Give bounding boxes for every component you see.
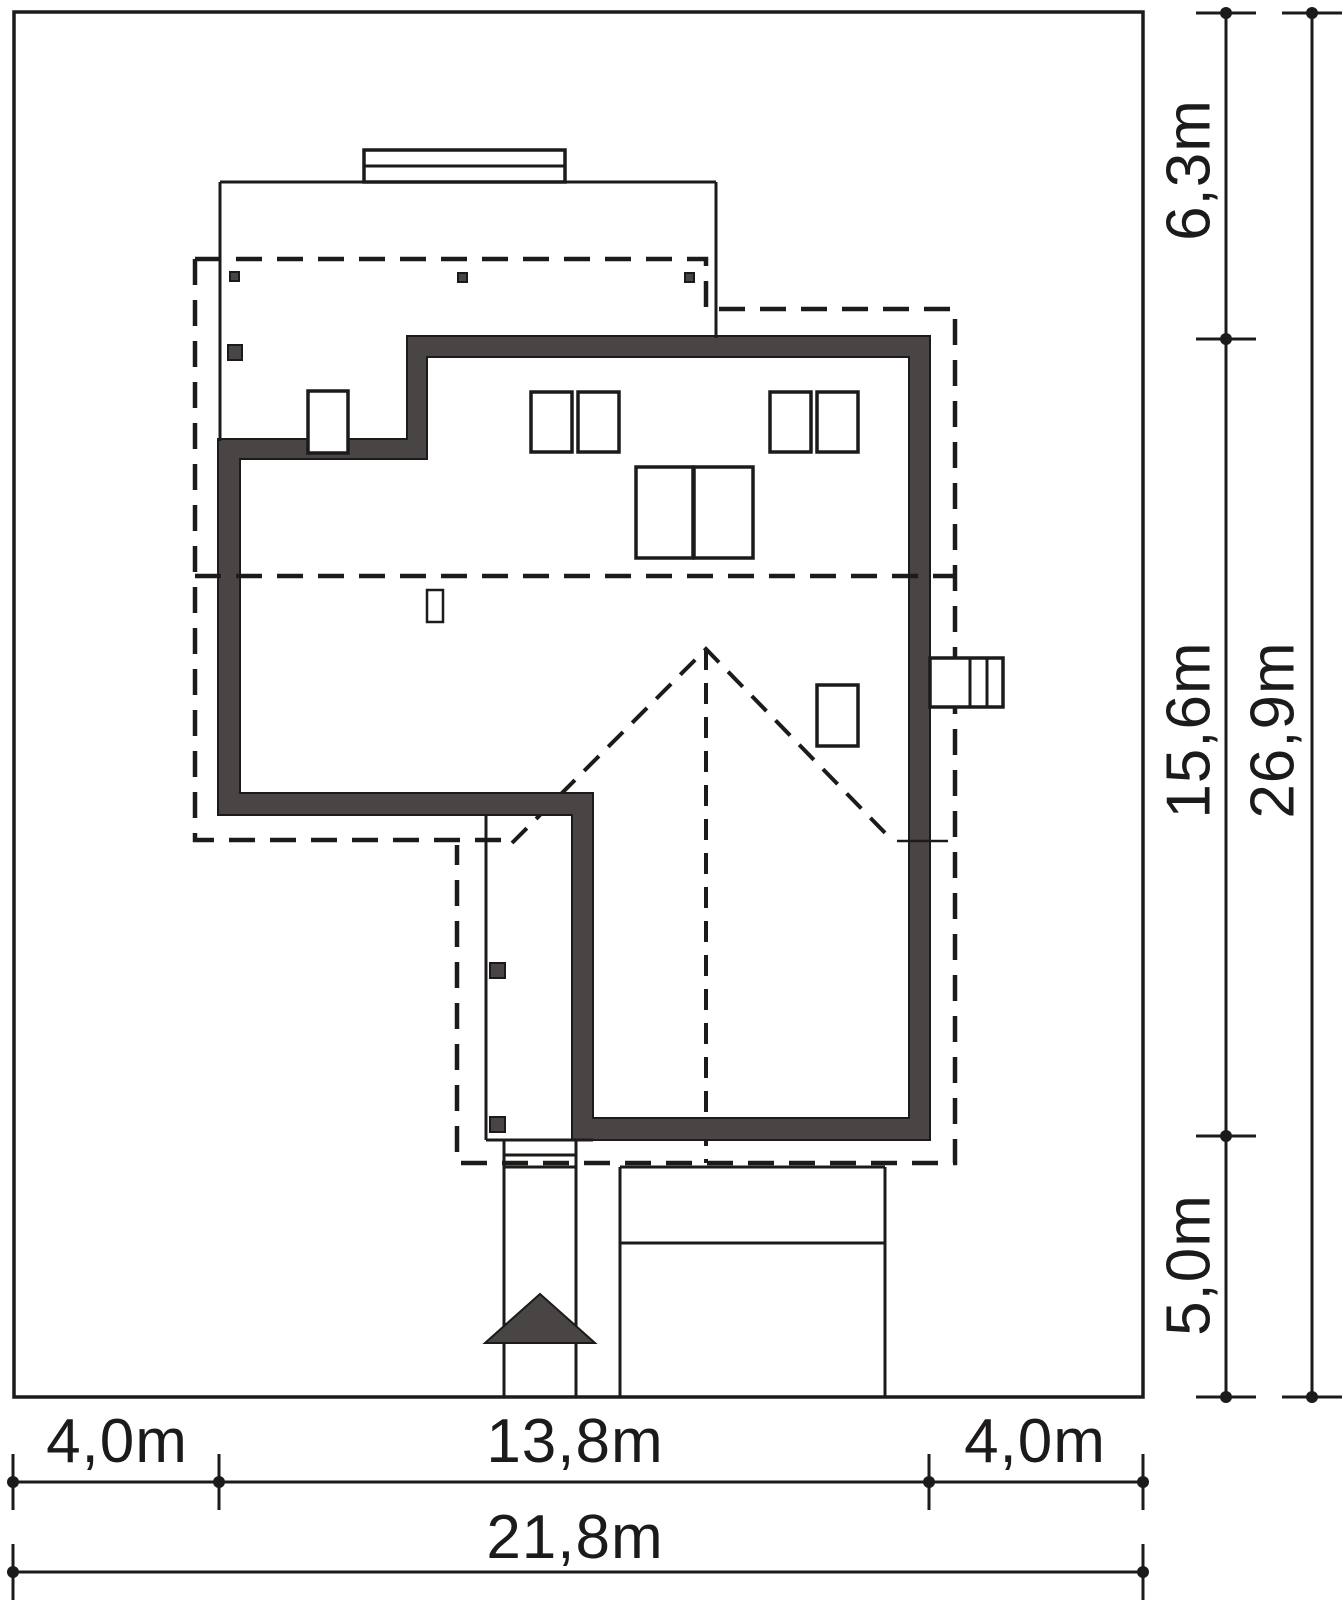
post-small-right	[685, 273, 694, 282]
dim-label-26-9m: 26,9m	[1239, 641, 1308, 818]
side-chimney	[930, 658, 1003, 707]
window-top-left-a	[531, 392, 572, 452]
dim-dot	[7, 1566, 19, 1578]
window-top-right-b	[817, 392, 858, 452]
dim-label-13-8m: 13,8m	[486, 1407, 663, 1476]
terrace-post-lower	[490, 1117, 505, 1132]
dim-label-15-6m: 15,6m	[1155, 641, 1224, 818]
window-top-left-b	[578, 392, 619, 452]
site-plan: 6,3m 15,6m 5,0m 26,9m 4,0m 13,8m 4,0m 21…	[0, 0, 1344, 1600]
dim-dot	[1306, 7, 1318, 19]
window-small	[427, 590, 443, 622]
dim-dot	[923, 1476, 935, 1488]
dim-label-5-0m: 5,0m	[1155, 1194, 1224, 1336]
window-center-b	[694, 467, 753, 558]
terrace-post-upper	[490, 963, 505, 978]
post-small-left	[230, 272, 239, 281]
site-plan-drawing: 6,3m 15,6m 5,0m 26,9m 4,0m 13,8m 4,0m 21…	[0, 0, 1344, 1600]
dim-dot	[1220, 333, 1232, 345]
roof-chimney	[364, 150, 565, 182]
dim-dot	[7, 1476, 19, 1488]
dim-label-4-0m-right: 4,0m	[964, 1407, 1106, 1476]
dimension-bottom: 4,0m 13,8m 4,0m 21,8m	[7, 1407, 1149, 1600]
window-garage	[308, 391, 348, 453]
dim-dot	[1220, 1391, 1232, 1403]
side-chimney-body	[930, 658, 1003, 707]
roof-window	[817, 685, 858, 746]
post-large-left	[228, 345, 242, 360]
dim-label-21-8m: 21,8m	[486, 1503, 663, 1572]
window-top-right-a	[770, 392, 811, 452]
dim-dot	[1137, 1566, 1149, 1578]
dim-label-6-3m: 6,3m	[1155, 99, 1224, 241]
post-small-middle	[458, 273, 467, 282]
dim-dot	[1306, 1391, 1318, 1403]
window-center-a	[636, 467, 693, 558]
dim-dot	[1137, 1476, 1149, 1488]
dim-label-4-0m-left: 4,0m	[46, 1407, 188, 1476]
dimension-right: 6,3m 15,6m 5,0m 26,9m	[1155, 7, 1342, 1403]
dim-dot	[213, 1476, 225, 1488]
dim-dot	[1220, 1130, 1232, 1142]
dim-dot	[1220, 7, 1232, 19]
